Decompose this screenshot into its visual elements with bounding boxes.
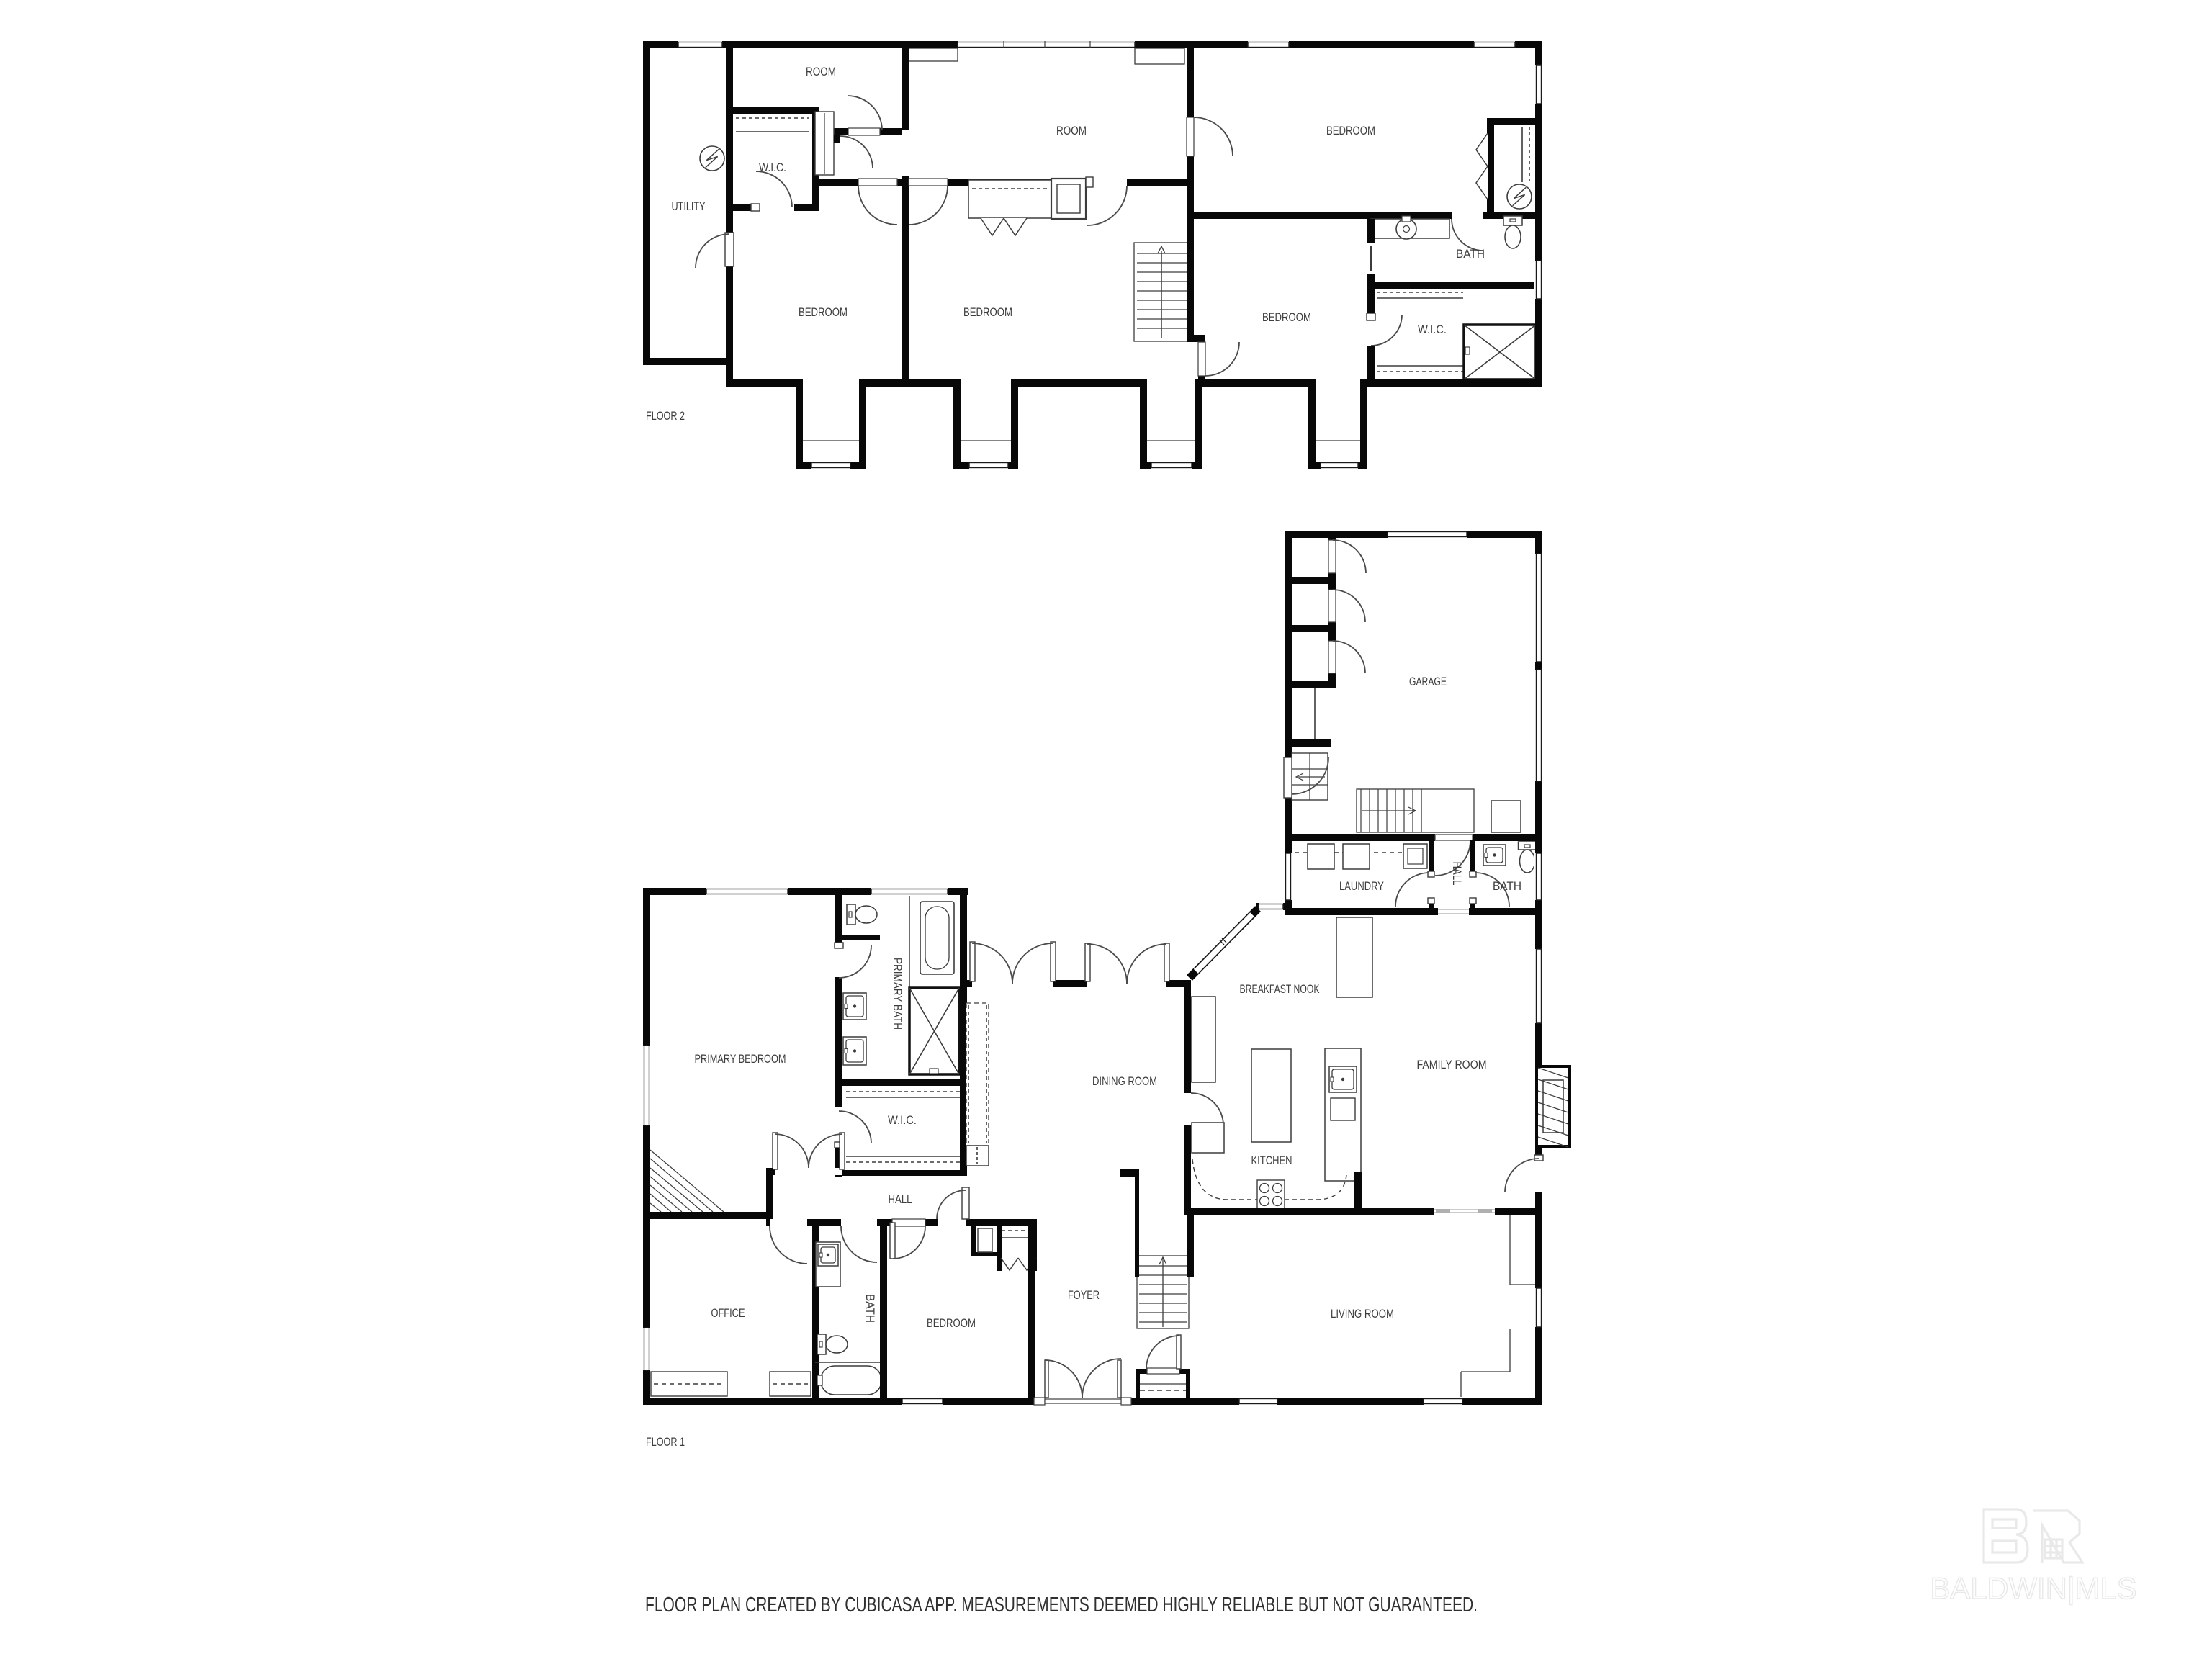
svg-text:FLOOR 2: FLOOR 2: [646, 409, 685, 423]
svg-text:OFFICE: OFFICE: [711, 1306, 745, 1320]
svg-text:BALDWIN|MLS: BALDWIN|MLS: [1930, 1571, 2137, 1605]
svg-text:LIVING ROOM: LIVING ROOM: [1331, 1307, 1394, 1321]
svg-text:KITCHEN: KITCHEN: [1251, 1154, 1292, 1167]
svg-text:FLOOR PLAN CREATED BY CUBICASA: FLOOR PLAN CREATED BY CUBICASA APP. MEAS…: [645, 1593, 1478, 1617]
svg-text:BATH: BATH: [863, 1294, 877, 1323]
svg-text:FAMILY ROOM: FAMILY ROOM: [1417, 1058, 1487, 1071]
svg-text:BEDROOM: BEDROOM: [799, 305, 848, 319]
svg-text:PRIMARY BEDROOM: PRIMARY BEDROOM: [695, 1052, 786, 1066]
svg-text:W.I.C.: W.I.C.: [759, 161, 786, 174]
svg-text:HALL: HALL: [889, 1192, 912, 1206]
svg-text:GARAGE: GARAGE: [1409, 675, 1447, 688]
svg-text:ROOM: ROOM: [806, 65, 836, 78]
svg-text:ROOM: ROOM: [1056, 124, 1087, 138]
svg-text:BATH: BATH: [1493, 879, 1521, 893]
svg-text:HALL: HALL: [1450, 862, 1464, 886]
svg-text:FLOOR 1: FLOOR 1: [646, 1435, 685, 1449]
svg-text:FOYER: FOYER: [1068, 1288, 1100, 1302]
svg-text:DINING ROOM: DINING ROOM: [1092, 1074, 1157, 1088]
svg-text:BEDROOM: BEDROOM: [963, 305, 1012, 319]
svg-text:BEDROOM: BEDROOM: [1262, 310, 1311, 324]
svg-text:BATH: BATH: [1456, 247, 1485, 261]
svg-text:W.I.C.: W.I.C.: [1418, 323, 1447, 336]
svg-text:BEDROOM: BEDROOM: [1326, 124, 1375, 138]
svg-text:UTILITY: UTILITY: [672, 199, 706, 213]
svg-text:PRIMARY BATH: PRIMARY BATH: [891, 958, 904, 1030]
svg-text:BREAKFAST NOOK: BREAKFAST NOOK: [1240, 982, 1320, 996]
svg-text:LAUNDRY: LAUNDRY: [1339, 879, 1384, 893]
svg-text:W.I.C.: W.I.C.: [888, 1113, 917, 1127]
svg-text:BEDROOM: BEDROOM: [927, 1316, 976, 1330]
